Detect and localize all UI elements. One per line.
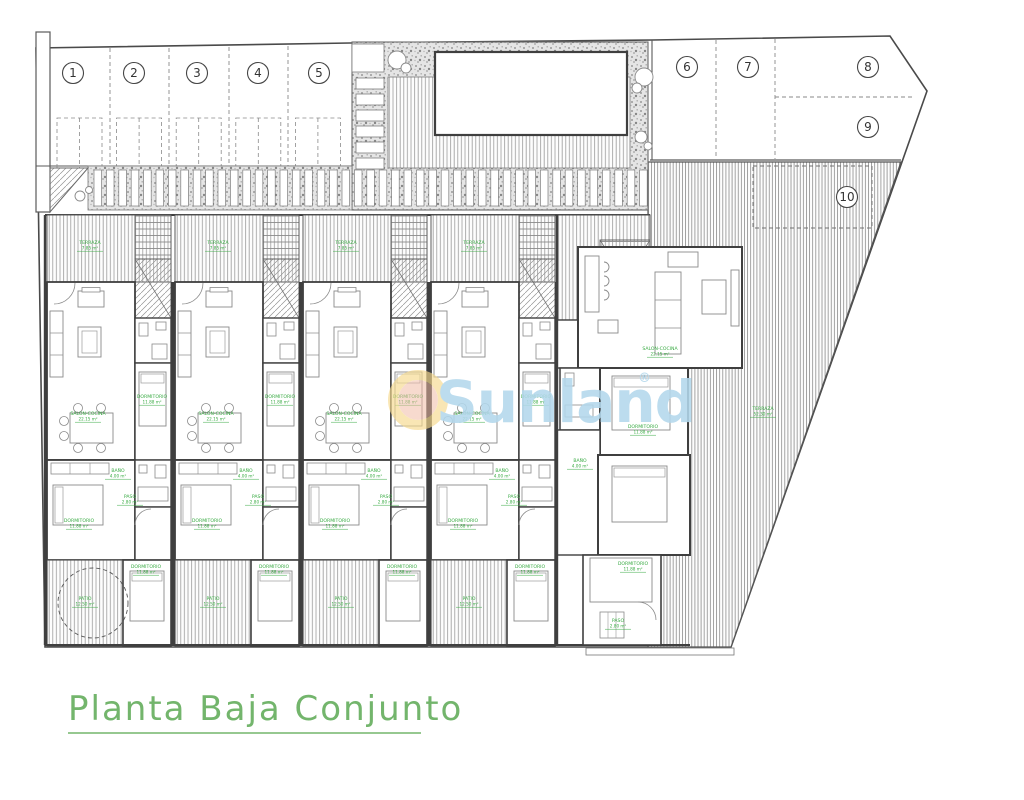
room-label-terraza_big: TERRAZA52.30 m² xyxy=(750,406,776,417)
watermark-registered-mark: ® xyxy=(638,371,651,386)
pergola-slat xyxy=(230,170,238,206)
pergola-slat xyxy=(565,170,573,206)
svg-text:4.00 m²: 4.00 m² xyxy=(572,463,589,468)
svg-text:11.88 m²: 11.88 m² xyxy=(623,566,642,571)
title-block: Planta Baja Conjunto xyxy=(68,689,463,733)
svg-text:7: 7 xyxy=(744,60,752,74)
pergola-slat xyxy=(131,170,139,206)
svg-text:6: 6 xyxy=(683,60,691,74)
svg-text:11.88 m²: 11.88 m² xyxy=(69,523,88,528)
entry-stairs xyxy=(50,168,88,212)
pergola-slat xyxy=(94,170,102,206)
svg-text:4.00 m²: 4.00 m² xyxy=(238,473,255,478)
pergola-slat xyxy=(268,170,276,206)
unit-module-3 xyxy=(302,215,428,646)
parking-space-4: 4 xyxy=(248,63,269,84)
svg-text:1: 1 xyxy=(69,66,77,80)
svg-text:11.88 m²: 11.88 m² xyxy=(453,523,472,528)
unit-module-1 xyxy=(46,215,172,646)
svg-text:8: 8 xyxy=(864,60,872,74)
svg-text:9: 9 xyxy=(864,120,872,134)
parking-space-2: 2 xyxy=(124,63,145,84)
pergola-slat xyxy=(156,170,164,206)
pergola-slat xyxy=(330,170,338,206)
pergola-slat xyxy=(342,170,350,206)
svg-text:10: 10 xyxy=(839,190,854,204)
pergola-slat xyxy=(590,170,598,206)
svg-text:12.50 m²: 12.50 m² xyxy=(203,601,222,606)
pergola-slat xyxy=(404,170,412,206)
floor-plan-page: 12345678910 TERRAZA7.85 m²TERRAZA7.85 m²… xyxy=(0,0,1024,800)
pergola-slat xyxy=(243,170,251,206)
svg-text:4: 4 xyxy=(254,66,262,80)
pergola-slat xyxy=(193,170,201,206)
pergola-slat xyxy=(602,170,610,206)
pergola-slat xyxy=(280,170,288,206)
svg-text:4.00 m²: 4.00 m² xyxy=(110,473,127,478)
pergola-slat xyxy=(168,170,176,206)
svg-text:4.00 m²: 4.00 m² xyxy=(366,473,383,478)
svg-text:11.88 m²: 11.88 m² xyxy=(325,523,344,528)
svg-text:7.85 m²: 7.85 m² xyxy=(338,245,355,250)
pergola-slat xyxy=(206,170,214,206)
pergola-slat xyxy=(354,170,362,206)
plan-title: Planta Baja Conjunto xyxy=(68,689,463,729)
parking-space-9: 9 xyxy=(858,117,879,138)
svg-text:7.85 m²: 7.85 m² xyxy=(210,245,227,250)
pergola-slat xyxy=(553,170,561,206)
pergola-slat xyxy=(454,170,462,206)
pergola-slat xyxy=(516,170,524,206)
pergola-slat xyxy=(119,170,127,206)
svg-text:3: 3 xyxy=(193,66,201,80)
pergola-slat xyxy=(441,170,449,206)
pergola-slat xyxy=(503,170,511,206)
svg-text:2: 2 xyxy=(130,66,138,80)
pergola-slat xyxy=(540,170,548,206)
left-wall-strip xyxy=(36,32,50,212)
parking-space-5: 5 xyxy=(309,63,330,84)
pergola-slat xyxy=(615,170,623,206)
svg-text:11.88 m²: 11.88 m² xyxy=(136,569,155,574)
svg-text:22.15 m²: 22.15 m² xyxy=(78,416,97,421)
svg-text:11.88 m²: 11.88 m² xyxy=(520,569,539,574)
pergola-slat xyxy=(305,170,313,206)
svg-text:12.50 m²: 12.50 m² xyxy=(459,601,478,606)
pergola-slat xyxy=(255,170,263,206)
svg-text:12.50 m²: 12.50 m² xyxy=(331,601,350,606)
pergola-slat xyxy=(578,170,586,206)
pergola-slat xyxy=(627,170,635,206)
svg-text:22.15 m²: 22.15 m² xyxy=(650,351,669,356)
svg-text:11.88 m²: 11.88 m² xyxy=(142,399,161,404)
svg-text:7.85 m²: 7.85 m² xyxy=(82,245,99,250)
pergola-slat xyxy=(218,170,226,206)
parking-space-3: 3 xyxy=(187,63,208,84)
watermark-brand: Sunland xyxy=(436,368,695,436)
svg-text:11.88 m²: 11.88 m² xyxy=(270,399,289,404)
floor-plan-drawing: 12345678910 TERRAZA7.85 m²TERRAZA7.85 m²… xyxy=(0,0,1024,800)
svg-text:4.00 m²: 4.00 m² xyxy=(494,473,511,478)
pergola-slat xyxy=(640,170,648,206)
pergola-slat xyxy=(106,170,114,206)
parking-space-6: 6 xyxy=(677,57,698,78)
watermark: Sunland ® xyxy=(393,368,695,436)
svg-text:2.80 m²: 2.80 m² xyxy=(378,499,395,504)
bottom-lip xyxy=(586,648,734,655)
pergola-slat xyxy=(416,170,424,206)
svg-text:2.80 m²: 2.80 m² xyxy=(250,499,267,504)
svg-text:11.88 m²: 11.88 m² xyxy=(392,569,411,574)
parking-space-7: 7 xyxy=(738,57,759,78)
svg-text:11.88 m²: 11.88 m² xyxy=(264,569,283,574)
svg-text:7.85 m²: 7.85 m² xyxy=(466,245,483,250)
pergola-slat xyxy=(379,170,387,206)
svg-text:52.30 m²: 52.30 m² xyxy=(753,411,772,416)
pergola-slat xyxy=(429,170,437,206)
pergola-slat xyxy=(392,170,400,206)
pergola-slat xyxy=(491,170,499,206)
svg-text:11.88 m²: 11.88 m² xyxy=(197,523,216,528)
watermark-core xyxy=(398,380,438,420)
pergola-slat xyxy=(292,170,300,206)
pergola-slat xyxy=(466,170,474,206)
svg-text:2.80 m²: 2.80 m² xyxy=(122,499,139,504)
unit-module-2 xyxy=(174,215,300,646)
svg-text:22.15 m²: 22.15 m² xyxy=(334,416,353,421)
svg-text:22.15 m²: 22.15 m² xyxy=(206,416,225,421)
pergola-slat xyxy=(181,170,189,206)
pergola-slat xyxy=(144,170,152,206)
svg-text:5: 5 xyxy=(315,66,323,80)
pergola-slat xyxy=(367,170,375,206)
svg-text:12.50 m²: 12.50 m² xyxy=(75,601,94,606)
swimming-pool xyxy=(435,52,627,135)
pergola-slat xyxy=(317,170,325,206)
svg-text:2.80 m²: 2.80 m² xyxy=(610,623,627,628)
parking-space-10: 10 xyxy=(837,187,858,208)
parking-space-8: 8 xyxy=(858,57,879,78)
parking-bays xyxy=(57,118,340,168)
pergola-slat xyxy=(478,170,486,206)
parking-space-1: 1 xyxy=(63,63,84,84)
pergola-slat xyxy=(528,170,536,206)
svg-text:2.80 m²: 2.80 m² xyxy=(506,499,523,504)
